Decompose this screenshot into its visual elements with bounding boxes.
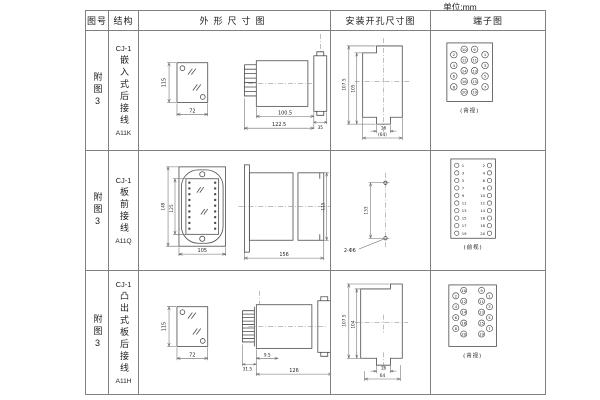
svg-text:2: 2 xyxy=(483,164,486,168)
dimension-label: 9.5 xyxy=(264,352,271,358)
svg-text:7: 7 xyxy=(462,187,465,191)
dimension-label: 105 xyxy=(198,248,207,254)
svg-text:12: 12 xyxy=(480,202,485,206)
model-label: CJ-1 xyxy=(116,44,132,53)
cell-fig-no-row1: 附图3 xyxy=(86,31,109,151)
dimension-label: 72 xyxy=(189,108,195,114)
svg-text:6: 6 xyxy=(483,179,486,183)
row1-mounting-diagram: 107.5 105 16 (64) xyxy=(331,31,430,150)
cell-outline-row3: 115 72 9.5 31.5 126 xyxy=(139,271,331,395)
svg-text:18: 18 xyxy=(480,224,485,228)
structure-label: 嵌入式后接线 xyxy=(119,55,128,127)
cell-mounting-row1: 107.5 105 16 (64) xyxy=(331,31,431,151)
svg-text:6: 6 xyxy=(453,75,456,79)
hole-spec-label: 2-Φ6 xyxy=(344,248,356,254)
row2-terminal-diagram: 1357911131517192468101214161820 (前视) xyxy=(431,151,545,270)
svg-text:3: 3 xyxy=(462,172,465,176)
header-mounting: 安装开孔尺寸图 xyxy=(331,11,431,31)
svg-text:16: 16 xyxy=(461,322,466,326)
svg-text:5: 5 xyxy=(488,316,491,320)
dimension-label: 156 xyxy=(279,252,288,258)
row1-terminal-diagram: 246810121416209111315191357 (背视) xyxy=(431,31,545,150)
cell-outline-row2: 149 125 105 156 115 xyxy=(139,151,331,271)
svg-text:11: 11 xyxy=(472,59,477,63)
svg-text:8: 8 xyxy=(483,187,486,191)
svg-text:9: 9 xyxy=(473,48,476,52)
svg-text:2: 2 xyxy=(453,53,456,57)
cell-mounting-row2: 133 2-Φ6 xyxy=(331,151,431,271)
dimension-label: 107.5 xyxy=(341,314,347,326)
svg-text:7: 7 xyxy=(488,327,491,331)
row1-outline-diagram: 115 72 100.5 35 122.5 xyxy=(139,31,330,150)
svg-text:14: 14 xyxy=(462,69,467,73)
svg-text:4: 4 xyxy=(483,172,486,176)
dimension-label: 72 xyxy=(189,352,195,358)
svg-text:7: 7 xyxy=(484,85,487,89)
fig-no-label: 附图3 xyxy=(93,72,102,109)
svg-text:5: 5 xyxy=(484,75,487,79)
dimension-label: 125 xyxy=(169,204,175,212)
svg-text:20: 20 xyxy=(462,91,467,95)
dimension-label: 122.5 xyxy=(272,122,286,128)
svg-text:14: 14 xyxy=(480,209,485,213)
svg-text:17: 17 xyxy=(462,224,467,228)
dimension-label: 100.5 xyxy=(278,110,292,116)
dimension-label: 133 xyxy=(364,206,370,214)
cell-structure-row3: CJ-1 凸出式板后接线 A11H xyxy=(109,271,139,395)
svg-text:3: 3 xyxy=(488,305,491,309)
dimension-label: 31.5 xyxy=(243,367,253,373)
svg-text:20: 20 xyxy=(480,232,485,236)
svg-text:13: 13 xyxy=(472,69,477,73)
cell-fig-no-row3: 附图3 xyxy=(86,271,109,395)
svg-text:15: 15 xyxy=(472,80,477,84)
cell-mounting-row3: 107.5 104 16 64 xyxy=(331,271,431,395)
dimension-label: 107.5 xyxy=(341,78,347,90)
svg-text:16: 16 xyxy=(480,217,485,221)
svg-text:4: 4 xyxy=(453,64,456,68)
terminal-caption: (背视) xyxy=(460,106,479,114)
dimension-label: 35 xyxy=(318,125,324,131)
svg-text:3: 3 xyxy=(484,64,487,68)
dimension-label: 115 xyxy=(162,322,168,331)
header-structure: 结构 xyxy=(109,11,139,31)
svg-text:8: 8 xyxy=(455,327,458,331)
document-page: 单位:mm 图号 结构 外形尺寸图 安装开孔尺寸图 端子图 附图3 CJ-1 嵌… xyxy=(0,0,600,400)
svg-text:5: 5 xyxy=(462,179,465,183)
header-outline: 外形尺寸图 xyxy=(139,11,331,31)
svg-text:20: 20 xyxy=(461,332,466,336)
svg-text:10: 10 xyxy=(480,194,485,198)
svg-text:15: 15 xyxy=(462,217,467,221)
type-code-label: A11K xyxy=(116,130,131,137)
dimension-label: (64) xyxy=(378,132,387,138)
svg-text:10: 10 xyxy=(461,289,466,293)
fig-no-label: 附图3 xyxy=(93,192,102,229)
svg-text:2: 2 xyxy=(455,294,458,298)
row2-mounting-diagram: 133 2-Φ6 xyxy=(331,151,430,270)
row2-outline-diagram: 149 125 105 156 115 xyxy=(139,151,330,270)
dimension-label: 64 xyxy=(380,373,386,379)
svg-text:13: 13 xyxy=(462,209,467,213)
svg-text:12: 12 xyxy=(461,300,466,304)
row3-outline-diagram: 115 72 9.5 31.5 126 xyxy=(139,271,330,394)
type-code-label: A11H xyxy=(116,378,132,385)
dimension-label: 16 xyxy=(381,126,387,132)
model-label: CJ-1 xyxy=(116,280,132,289)
svg-text:1: 1 xyxy=(488,294,491,298)
dimension-label: 115 xyxy=(162,78,168,87)
dimension-label: 126 xyxy=(289,368,298,374)
cell-structure-row1: CJ-1 嵌入式后接线 A11K xyxy=(109,31,139,151)
terminal-caption: (前视) xyxy=(464,243,483,251)
svg-text:1: 1 xyxy=(462,164,465,168)
dimension-label: 104 xyxy=(350,320,356,328)
cell-structure-row2: CJ-1 板前接线 A11Q xyxy=(109,151,139,271)
dimension-label: 115 xyxy=(321,202,327,210)
svg-text:8: 8 xyxy=(453,85,456,89)
dimension-table: 图号 结构 外形尺寸图 安装开孔尺寸图 端子图 附图3 CJ-1 嵌入式后接线 … xyxy=(85,10,546,395)
fig-no-label: 附图3 xyxy=(93,314,102,351)
svg-text:10: 10 xyxy=(462,48,467,52)
svg-text:15: 15 xyxy=(479,322,484,326)
row3-terminal-diagram: 246810121416209111315191357 (背视) xyxy=(431,271,545,394)
structure-label: 凸出式板后接线 xyxy=(119,291,128,375)
svg-text:6: 6 xyxy=(455,316,458,320)
svg-text:11: 11 xyxy=(479,300,484,304)
row3-mounting-diagram: 107.5 104 16 64 xyxy=(331,271,430,394)
cell-outline-row1: 115 72 100.5 35 122.5 xyxy=(139,31,331,151)
dimension-label: 16 xyxy=(381,366,387,372)
cell-terminal-row2: 1357911131517192468101214161820 (前视) xyxy=(431,151,546,271)
terminal-caption: (背视) xyxy=(463,351,482,359)
svg-text:14: 14 xyxy=(461,311,466,315)
dimension-label: 149 xyxy=(161,202,167,210)
svg-text:12: 12 xyxy=(462,59,467,63)
svg-text:11: 11 xyxy=(462,202,467,206)
svg-text:13: 13 xyxy=(479,311,484,315)
header-terminal: 端子图 xyxy=(431,11,546,31)
cell-terminal-row1: 246810121416209111315191357 (背视) xyxy=(431,31,546,151)
type-code-label: A11Q xyxy=(115,238,131,245)
svg-text:19: 19 xyxy=(462,232,467,236)
header-fig-no: 图号 xyxy=(86,11,109,31)
svg-text:19: 19 xyxy=(472,91,477,95)
svg-text:1: 1 xyxy=(484,53,487,57)
svg-text:9: 9 xyxy=(480,289,483,293)
svg-text:16: 16 xyxy=(462,80,467,84)
svg-text:19: 19 xyxy=(479,332,484,336)
model-label: CJ-1 xyxy=(116,176,132,185)
svg-text:9: 9 xyxy=(462,194,465,198)
svg-text:4: 4 xyxy=(455,305,458,309)
structure-label: 板前接线 xyxy=(119,187,128,235)
dimension-label: 105 xyxy=(350,84,356,92)
cell-terminal-row3: 246810121416209111315191357 (背视) xyxy=(431,271,546,395)
cell-fig-no-row2: 附图3 xyxy=(86,151,109,271)
